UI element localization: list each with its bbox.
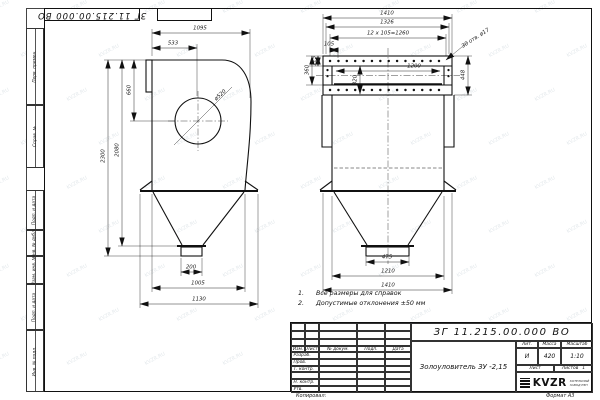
drawing-sheet: KVZR.RUKVZR.RUKVZR.RUKVZR.RUKVZR.RUKVZR.… bbox=[0, 0, 600, 400]
sheets-value: 1 bbox=[582, 366, 585, 371]
note-item: 1. Все размеры для справок bbox=[298, 290, 488, 297]
row-utv: Утв. bbox=[291, 386, 319, 393]
title-block: Изм. Лист № докум. Подп. Дата Разраб. Пр… bbox=[290, 322, 592, 392]
dim-front-rail-height: 115 bbox=[312, 56, 317, 66]
note-number: 2. bbox=[298, 300, 316, 307]
dim-front-flange-width: 1326 bbox=[380, 20, 394, 25]
part-name: Золоуловитель ЗУ -2,15 bbox=[420, 363, 507, 371]
header-scale: Масштаб bbox=[561, 341, 593, 348]
sheets-label: Листов bbox=[562, 366, 578, 371]
row-blank bbox=[291, 372, 319, 379]
dim-front-opening-height: 320 bbox=[353, 75, 358, 85]
dim-front-base-width: 1410 bbox=[381, 283, 395, 288]
note-text: Все размеры для справок bbox=[316, 290, 401, 297]
format-label: Формат А3 bbox=[546, 393, 574, 399]
copied-label: Копировал: bbox=[296, 393, 326, 399]
dim-side-hopper-width: 1005 bbox=[191, 281, 205, 286]
note-text: Допустимые отклонения ±50 мм bbox=[316, 300, 425, 307]
row-razrab: Разраб. bbox=[291, 352, 319, 359]
dim-side-base-width: 1130 bbox=[192, 297, 206, 302]
front-view bbox=[306, 14, 472, 294]
dim-front-opening-width: 1200 bbox=[407, 64, 421, 69]
sheets-cell: Листов 1 bbox=[554, 365, 593, 372]
header-lit: Лит. bbox=[516, 341, 538, 348]
dim-side-inlet-height: 660 bbox=[127, 85, 132, 95]
row-nkontr: Н. контр. bbox=[291, 379, 319, 386]
dim-side-height-total: 2300 bbox=[101, 149, 106, 163]
logo-cell: KVZR КОТЕЛЬНЫЙ ЗАВОД РЭП bbox=[516, 372, 593, 393]
value-lit: И bbox=[516, 348, 538, 365]
notes-list: 1. Все размеры для справок 2. Допустимые… bbox=[298, 290, 488, 310]
note-item: 2. Допустимые отклонения ±50 мм bbox=[298, 300, 488, 307]
row-prov: Пров. bbox=[291, 359, 319, 366]
dim-front-hole-pitch: 105 bbox=[324, 42, 334, 47]
kvzr-logo-text: KVZR bbox=[533, 377, 567, 389]
dim-front-flange-height: 448 bbox=[461, 70, 466, 80]
dim-side-outlet-width: 200 bbox=[186, 265, 196, 270]
doc-number: ЗГ 11.215.00.000 ВО bbox=[434, 327, 571, 338]
value-scale: 1:10 bbox=[561, 348, 593, 365]
row-tkontr: Т. контр. bbox=[291, 366, 319, 373]
header-mass: Масса bbox=[538, 341, 561, 348]
dim-front-holes-spacing: 12 х 105=1260 bbox=[367, 31, 409, 36]
sheet-label: Лист bbox=[516, 365, 554, 372]
value-mass: 420 bbox=[538, 348, 561, 365]
dim-side-width-top: 1095 bbox=[193, 26, 207, 31]
dim-side-height-inner: 2080 bbox=[115, 143, 120, 157]
side-view bbox=[104, 29, 258, 308]
note-number: 1. bbox=[298, 290, 316, 297]
kvzr-logo-icon bbox=[520, 378, 530, 388]
dim-side-inlet-width: 533 bbox=[168, 41, 178, 46]
logo-subtitle-2: ЗАВОД РЭП bbox=[570, 383, 590, 387]
dim-front-mid-height: 360 bbox=[305, 65, 310, 75]
dim-front-width-total: 1410 bbox=[380, 11, 394, 16]
dim-front-outlet-width: 475 bbox=[382, 255, 392, 260]
dim-front-body-width: 1210 bbox=[381, 269, 395, 274]
